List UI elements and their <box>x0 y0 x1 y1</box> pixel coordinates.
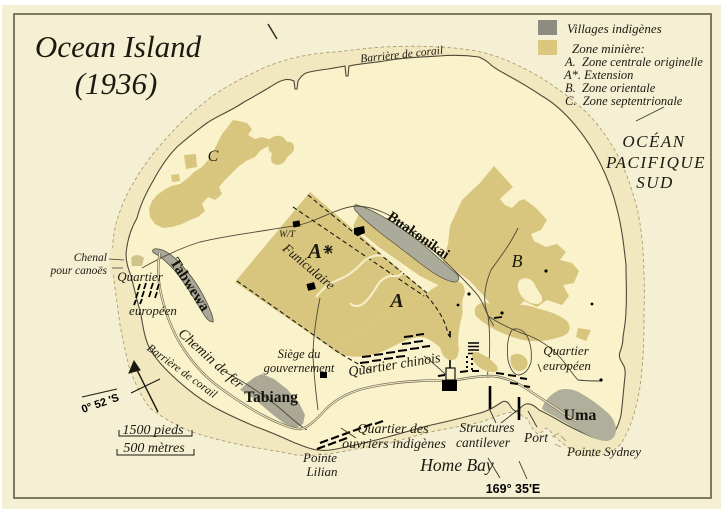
svg-text:Quartier: Quartier <box>117 269 163 284</box>
svg-text:500 mètres: 500 mètres <box>123 441 185 456</box>
svg-text:Zone minière:: Zone minière: <box>572 41 645 56</box>
svg-text:Pointe: Pointe <box>302 450 337 465</box>
svg-text:européen: européen <box>129 303 177 318</box>
svg-text:PACIFIQUE: PACIFIQUE <box>605 153 706 172</box>
svg-text:C. Zone septentrionale: C. Zone septentrionale <box>565 94 683 108</box>
svg-text:B: B <box>512 251 523 271</box>
svg-text:Chenal: Chenal <box>74 252 107 264</box>
svg-text:W/T: W/T <box>279 230 296 240</box>
svg-text:A: A <box>388 290 403 312</box>
svg-text:B. Zone orientale: B. Zone orientale <box>565 81 656 95</box>
svg-text:OCÉAN: OCÉAN <box>622 132 685 151</box>
svg-text:ouvriers indigènes: ouvriers indigènes <box>342 437 446 452</box>
svg-text:Home Bay: Home Bay <box>419 455 494 475</box>
svg-text:Ocean Island: Ocean Island <box>35 29 202 64</box>
svg-text:Uma: Uma <box>564 407 597 424</box>
svg-text:Siège du: Siège du <box>278 347 321 361</box>
svg-text:Quartier: Quartier <box>543 343 589 358</box>
svg-text:A*. Extension: A*. Extension <box>563 68 633 82</box>
svg-text:européen: européen <box>543 358 591 373</box>
svg-text:Pointe Sydney: Pointe Sydney <box>566 444 641 459</box>
svg-text:Quartier des: Quartier des <box>357 422 429 437</box>
svg-text:Tabiang: Tabiang <box>244 389 298 406</box>
svg-text:SUD: SUD <box>636 173 674 192</box>
svg-text:169° 35'E: 169° 35'E <box>486 482 541 496</box>
svg-text:1500 pieds: 1500 pieds <box>122 423 184 438</box>
svg-text:Villages indigènes: Villages indigènes <box>567 21 662 36</box>
svg-text:(1936): (1936) <box>75 66 158 101</box>
svg-text:A. Zone centrale originelle: A. Zone centrale originelle <box>564 55 703 69</box>
svg-text:cantilever: cantilever <box>456 435 511 450</box>
svg-text:Lilian: Lilian <box>305 464 337 479</box>
svg-text:Structures: Structures <box>460 420 515 435</box>
svg-text:Port: Port <box>523 430 549 445</box>
svg-text:C: C <box>208 148 219 165</box>
svg-text:pour canoës: pour canoës <box>49 265 107 277</box>
svg-text:gouvernement: gouvernement <box>264 361 335 375</box>
